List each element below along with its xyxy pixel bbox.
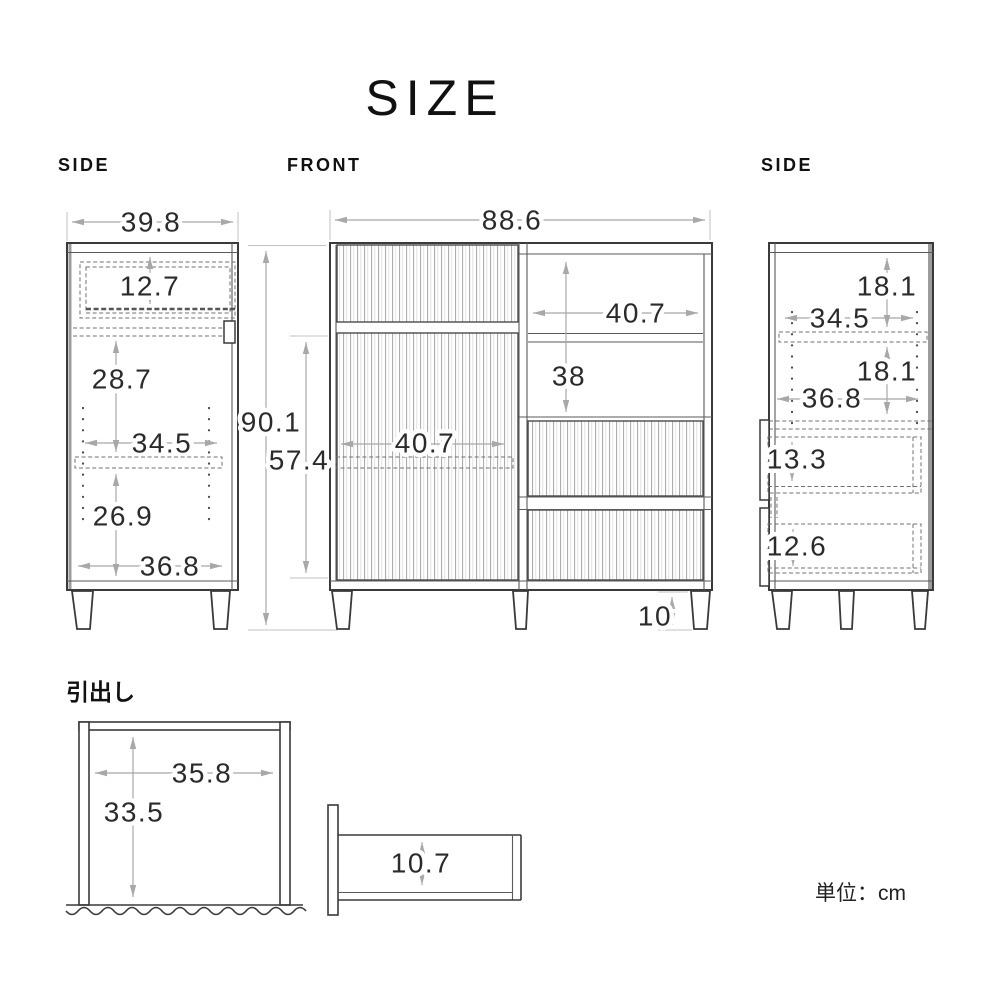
ground-wavy-line (66, 908, 306, 915)
front-leg (513, 591, 528, 629)
dim-front-total-height: 90.1 (241, 407, 302, 438)
front-label: FRONT (287, 155, 362, 175)
front-drawer2-fluted (528, 510, 703, 580)
front-leg (332, 591, 352, 629)
dim-front-leg-height: 10 (638, 601, 672, 632)
side-right-leg (839, 591, 854, 629)
size-diagram: SIZE SIDE 39.8 12.7 28.7 34.5 26 (0, 0, 1000, 1000)
front-leg (691, 591, 710, 629)
dim-side-right-middle-inner-height: 18.1 (857, 356, 918, 387)
drawer-right-side (280, 722, 290, 905)
front-view: FRONT 88.6 40.7 38 40.7 (241, 155, 712, 632)
side-left-view: SIDE 39.8 12.7 28.7 34.5 26.9 36.8 (58, 155, 238, 629)
front-drawer1-fluted (528, 421, 703, 496)
dim-side-left-inner-width: 36.8 (140, 551, 201, 582)
dim-side-left-width: 39.8 (121, 207, 182, 238)
side-right-label: SIDE (761, 155, 813, 175)
title-block: SIZE (365, 70, 504, 126)
dim-side-right-drawer2-height: 12.6 (767, 531, 828, 562)
side-left-label: SIDE (58, 155, 110, 175)
size-diagram-page: SIZE SIDE 39.8 12.7 28.7 34.5 26 (0, 0, 1000, 1000)
front-top-drawer-fluted (337, 245, 518, 322)
dim-side-left-shelf-width: 34.5 (132, 428, 193, 459)
dim-side-right-upper-inner-height: 18.1 (857, 271, 918, 302)
dim-side-right-inner-width: 36.8 (802, 383, 863, 414)
page-title: SIZE (365, 70, 504, 126)
drawer-side-front-panel (328, 805, 338, 915)
side-right-leg (772, 591, 792, 629)
drawer-top-rail (79, 722, 290, 730)
dim-front-door-inner-width: 40.7 (395, 428, 456, 459)
side-left-leg (72, 591, 93, 629)
dim-side-left-top-drawer-height: 12.7 (120, 271, 181, 302)
dim-front-lower-height: 57.4 (269, 445, 330, 476)
drawer-detail-label: 引出し (66, 679, 135, 705)
drawer-left-side (79, 722, 89, 905)
dim-front-open-height: 38 (552, 361, 586, 392)
dim-side-right-drawer1-height: 13.3 (767, 444, 828, 475)
dim-drawer-side-height: 10.7 (391, 848, 452, 879)
dim-front-open-width: 40.7 (606, 298, 667, 329)
side-right-leg (912, 591, 928, 629)
unit-note: 単位：cm (815, 882, 906, 905)
side-left-shelf (75, 457, 222, 468)
dim-drawer-inner-width: 35.8 (172, 758, 233, 789)
dim-side-left-upper-inner-height: 28.7 (92, 364, 153, 395)
drawer-detail: 引出し 35.8 33.5 10.7 (66, 679, 521, 915)
side-left-handle (224, 321, 235, 343)
dim-drawer-inner-height: 33.5 (104, 797, 165, 828)
side-right-shelf (779, 332, 927, 342)
side-left-leg (211, 591, 230, 629)
dim-side-left-lower-inner-height: 26.9 (93, 501, 154, 532)
dim-front-width: 88.6 (482, 205, 543, 236)
side-right-view: SIDE 18.1 34.5 18.1 36.8 13.3 1 (760, 155, 933, 629)
dim-side-right-shelf-width: 34.5 (810, 303, 871, 334)
